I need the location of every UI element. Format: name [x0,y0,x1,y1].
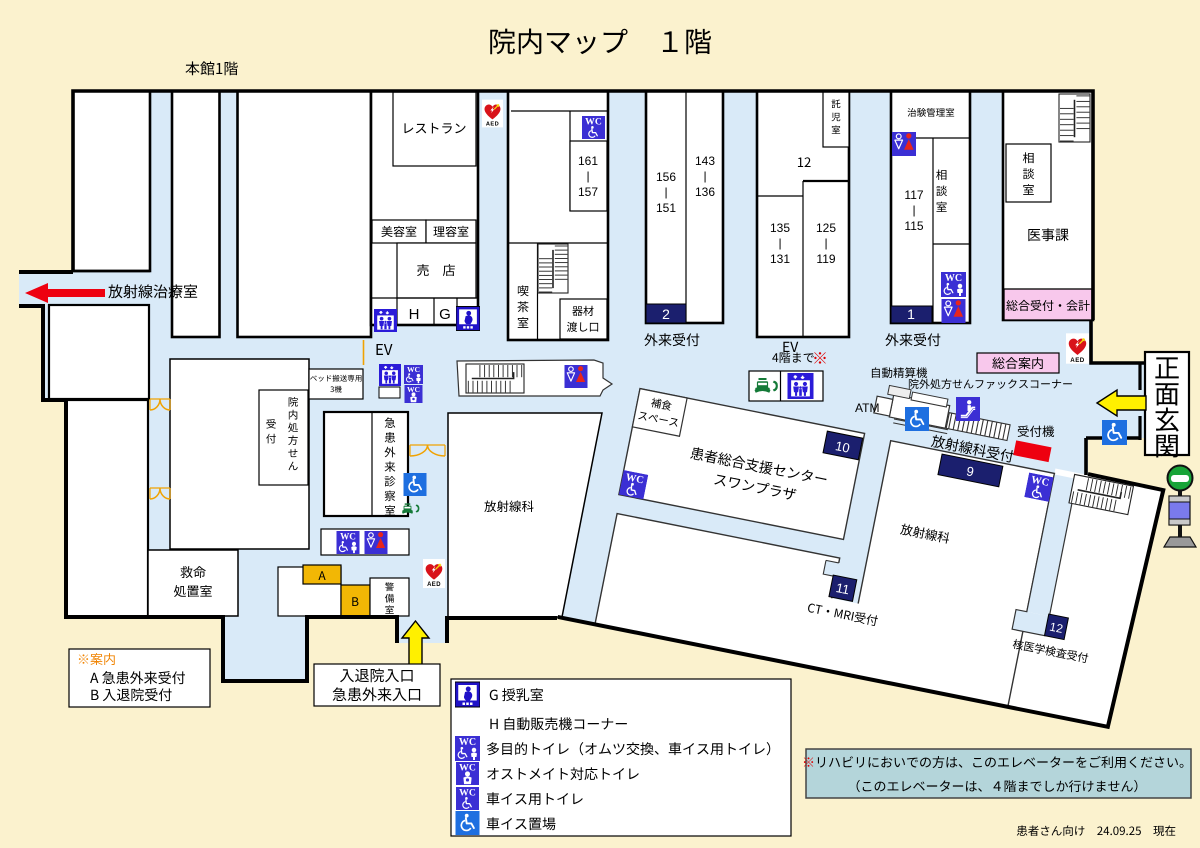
svg-text:10: 10 [834,438,851,456]
svg-text:157: 157 [578,185,598,199]
svg-text:1: 1 [907,306,915,322]
svg-text:|: | [664,185,667,199]
svg-text:131: 131 [770,252,790,266]
svg-text:H: H [409,306,420,323]
svg-text:156: 156 [656,170,676,184]
svg-text:2: 2 [662,306,670,322]
svg-text:|: | [778,236,781,250]
svg-text:|: | [912,203,915,217]
svg-text:119: 119 [816,252,835,266]
svg-text:ATM: ATM [855,401,879,415]
svg-text:|: | [703,169,706,183]
svg-text:135: 135 [770,221,790,235]
svg-text:117: 117 [904,188,923,202]
svg-text:G: G [439,306,451,323]
svg-text:161: 161 [578,154,598,168]
svg-text:151: 151 [656,201,676,215]
svg-text:115: 115 [904,219,923,233]
svg-text:|: | [824,236,827,250]
svg-text:136: 136 [695,185,715,199]
svg-text:|: | [586,169,589,183]
svg-text:11: 11 [835,580,851,597]
svg-text:143: 143 [695,154,715,168]
svg-text:125: 125 [816,221,836,235]
